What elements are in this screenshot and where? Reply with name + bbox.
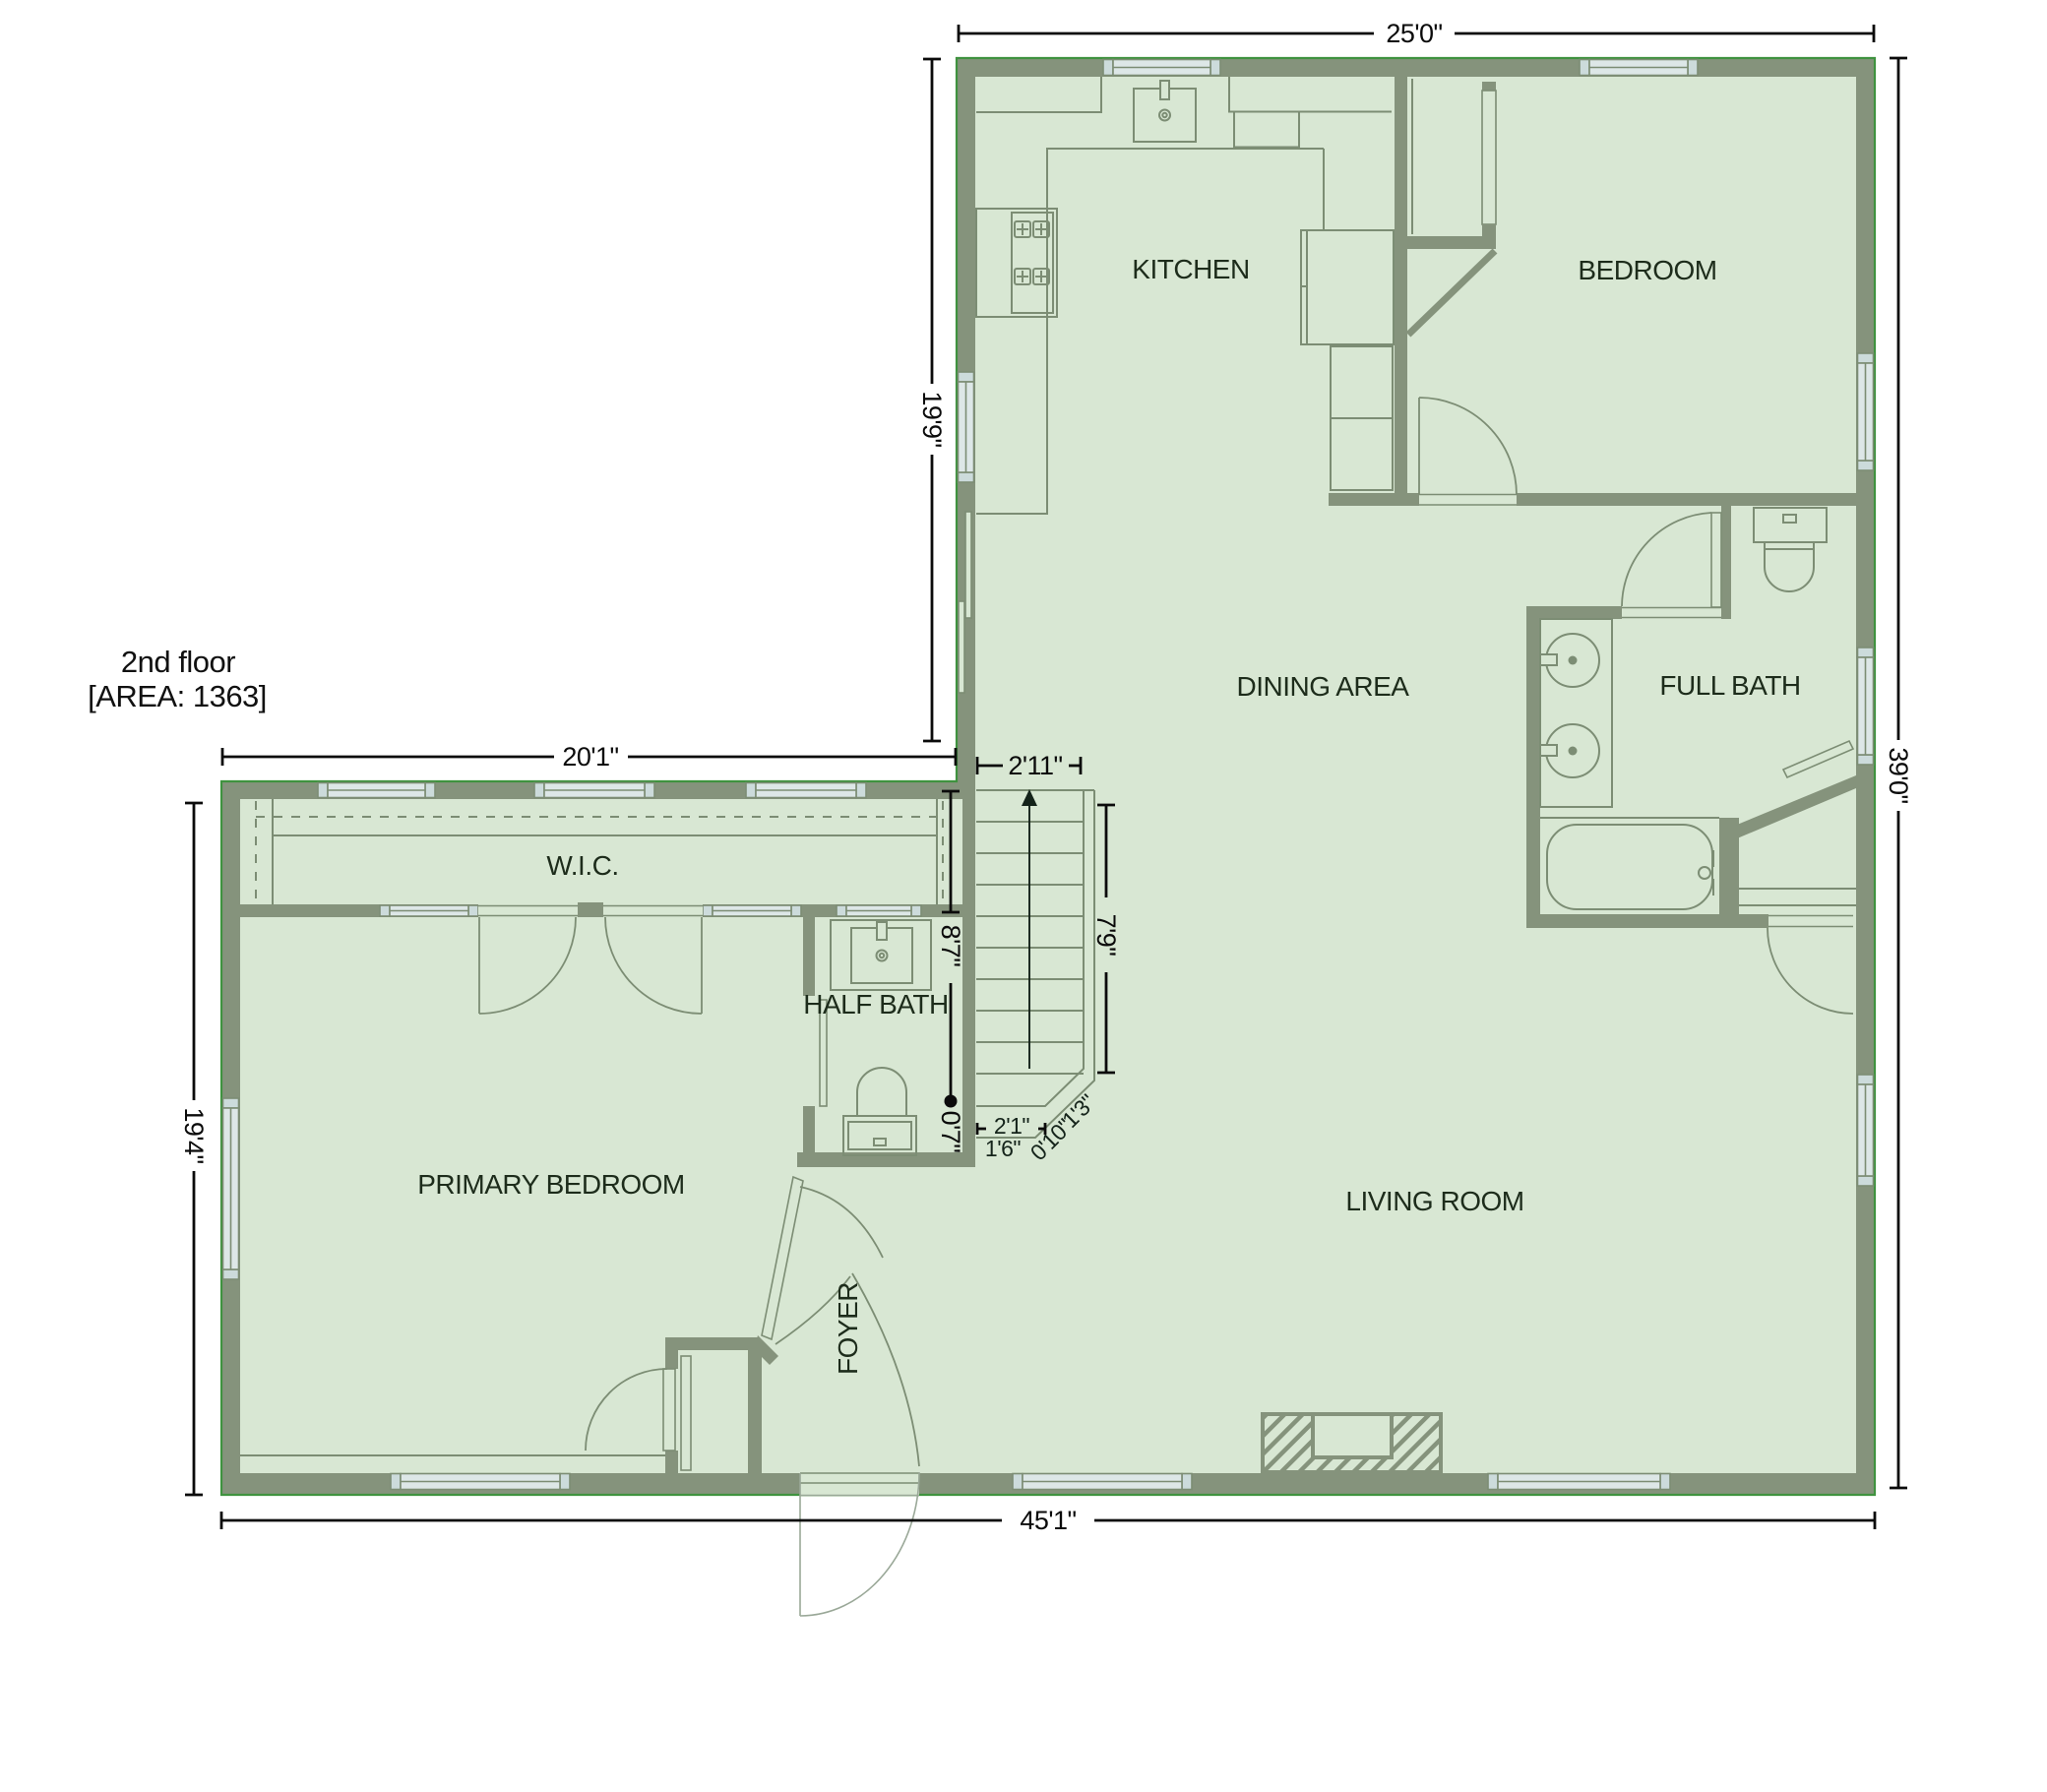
svg-text:FULL BATH: FULL BATH: [1659, 670, 1800, 701]
svg-text:W.I.C.: W.I.C.: [546, 850, 618, 881]
svg-text:20'1": 20'1": [562, 742, 618, 772]
svg-text:19'4": 19'4": [179, 1107, 209, 1163]
svg-text:7'9": 7'9": [1091, 914, 1121, 957]
svg-text:BEDROOM: BEDROOM: [1578, 255, 1716, 285]
svg-text:45'1": 45'1": [1020, 1506, 1076, 1535]
svg-text:1'6": 1'6": [985, 1136, 1021, 1161]
svg-text:2nd floor: 2nd floor: [121, 645, 235, 679]
svg-text:PRIMARY BEDROOM: PRIMARY BEDROOM: [417, 1169, 685, 1200]
svg-text:2'11": 2'11": [1008, 751, 1062, 780]
svg-text:39'0": 39'0": [1884, 747, 1913, 803]
svg-text:0'7": 0'7": [936, 1111, 965, 1153]
svg-text:[AREA: 1363]: [AREA: 1363]: [88, 679, 267, 713]
svg-text:FOYER: FOYER: [833, 1282, 863, 1375]
svg-text:KITCHEN: KITCHEN: [1132, 254, 1249, 284]
svg-text:LIVING ROOM: LIVING ROOM: [1345, 1186, 1523, 1216]
svg-text:8'7": 8'7": [936, 925, 965, 967]
svg-text:19'9": 19'9": [917, 391, 947, 447]
svg-text:25'0": 25'0": [1386, 19, 1442, 48]
svg-text:HALF BATH: HALF BATH: [803, 989, 948, 1020]
svg-text:DINING AREA: DINING AREA: [1237, 671, 1410, 702]
